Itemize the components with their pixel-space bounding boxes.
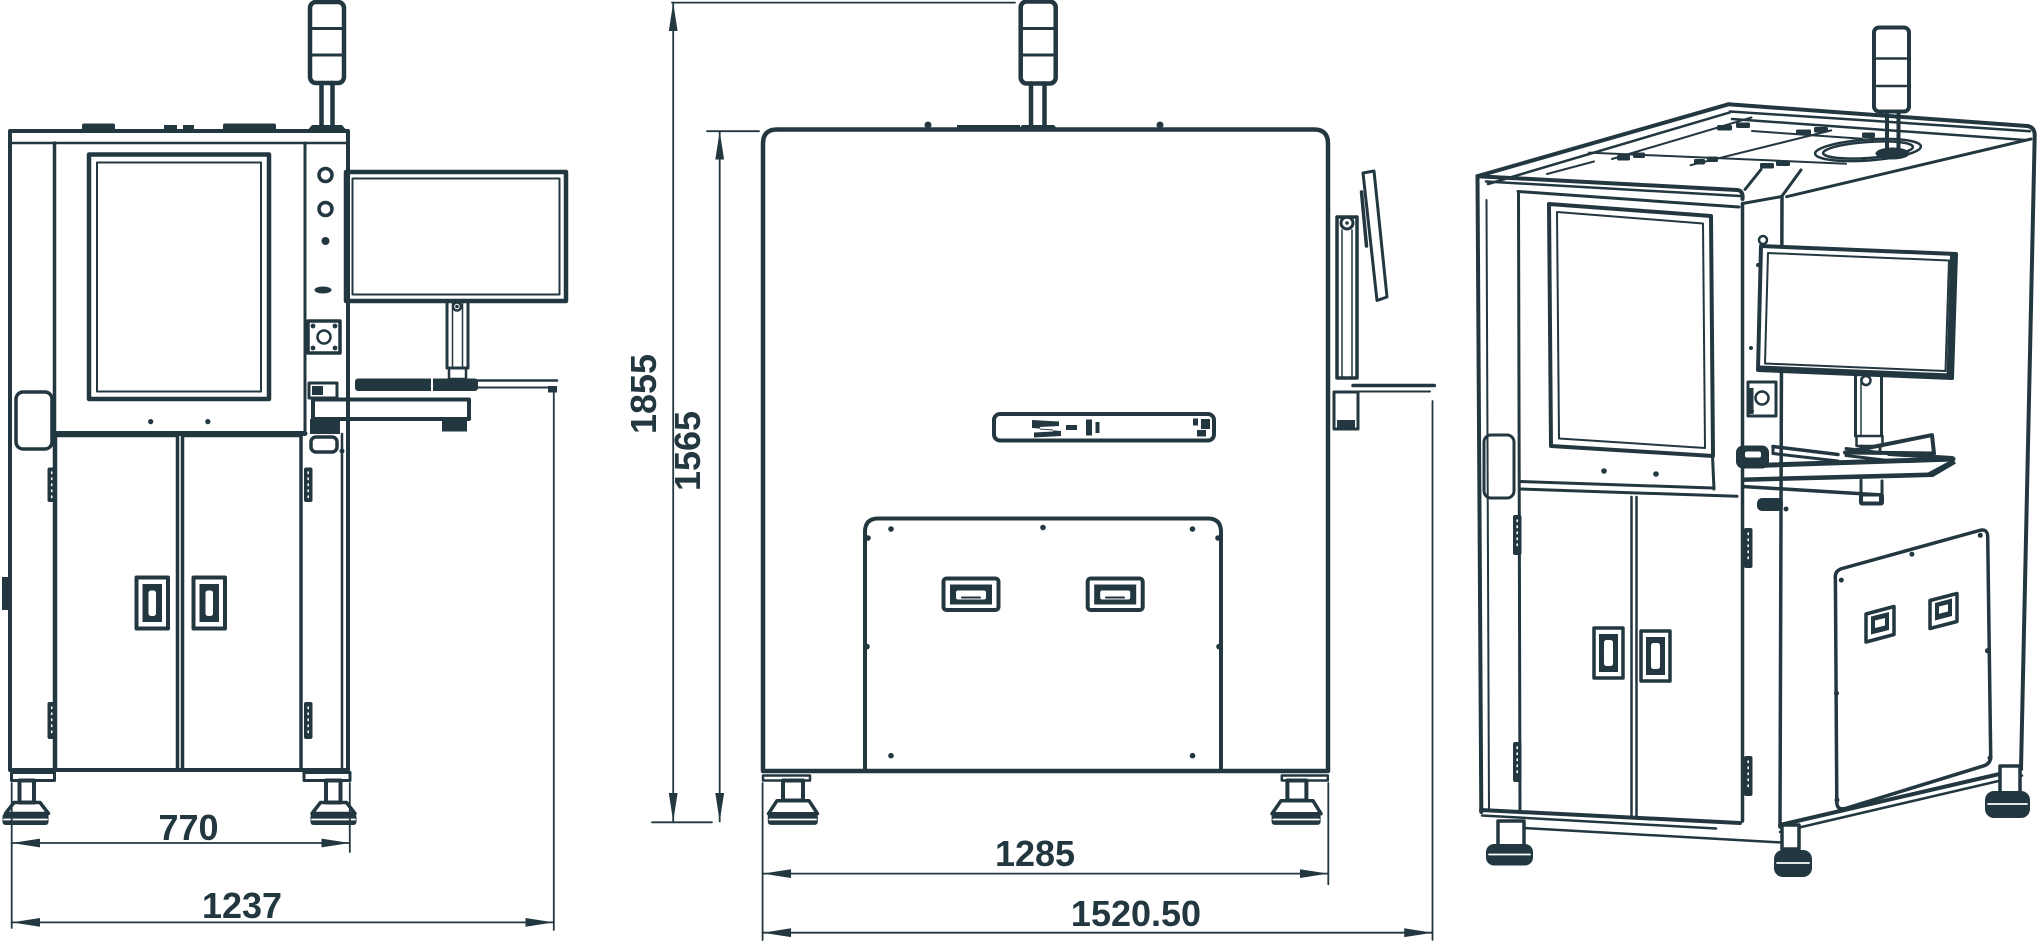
svg-text:1237: 1237	[202, 885, 282, 926]
svg-text:1520.50: 1520.50	[1071, 893, 1201, 934]
svg-text:1285: 1285	[995, 833, 1075, 874]
svg-text:1855: 1855	[623, 354, 664, 434]
svg-text:1565: 1565	[667, 411, 708, 491]
svg-text:770: 770	[158, 807, 218, 848]
